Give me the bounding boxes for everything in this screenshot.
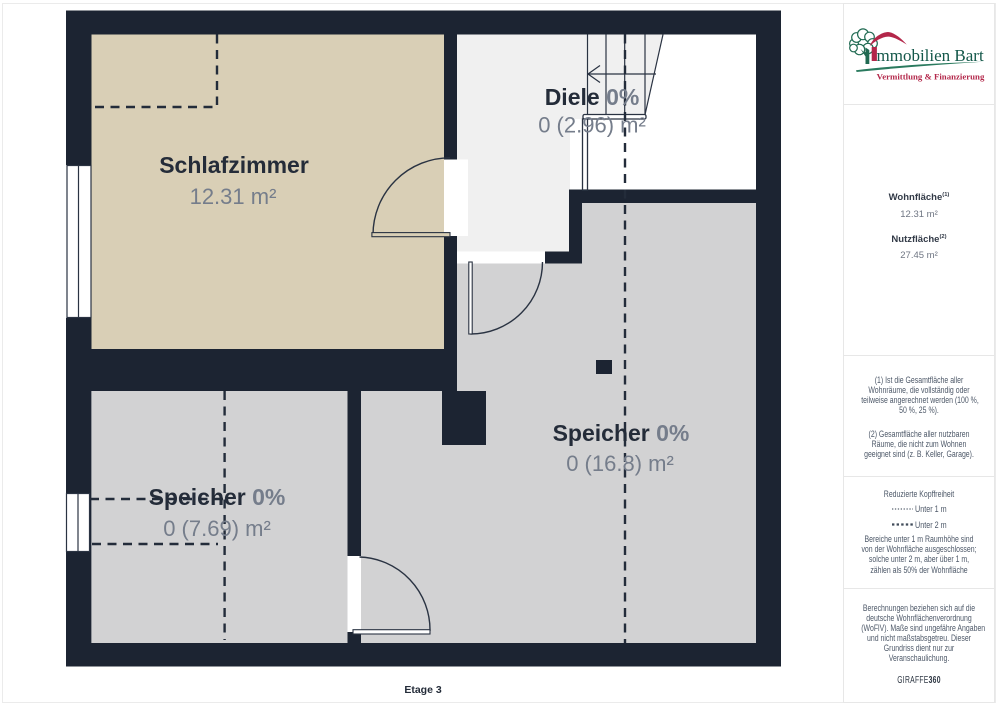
svg-text:Vermittlung & Finanzierung: Vermittlung & Finanzierung bbox=[877, 71, 985, 81]
svg-text:mmobilien Bart: mmobilien Bart bbox=[877, 46, 984, 65]
